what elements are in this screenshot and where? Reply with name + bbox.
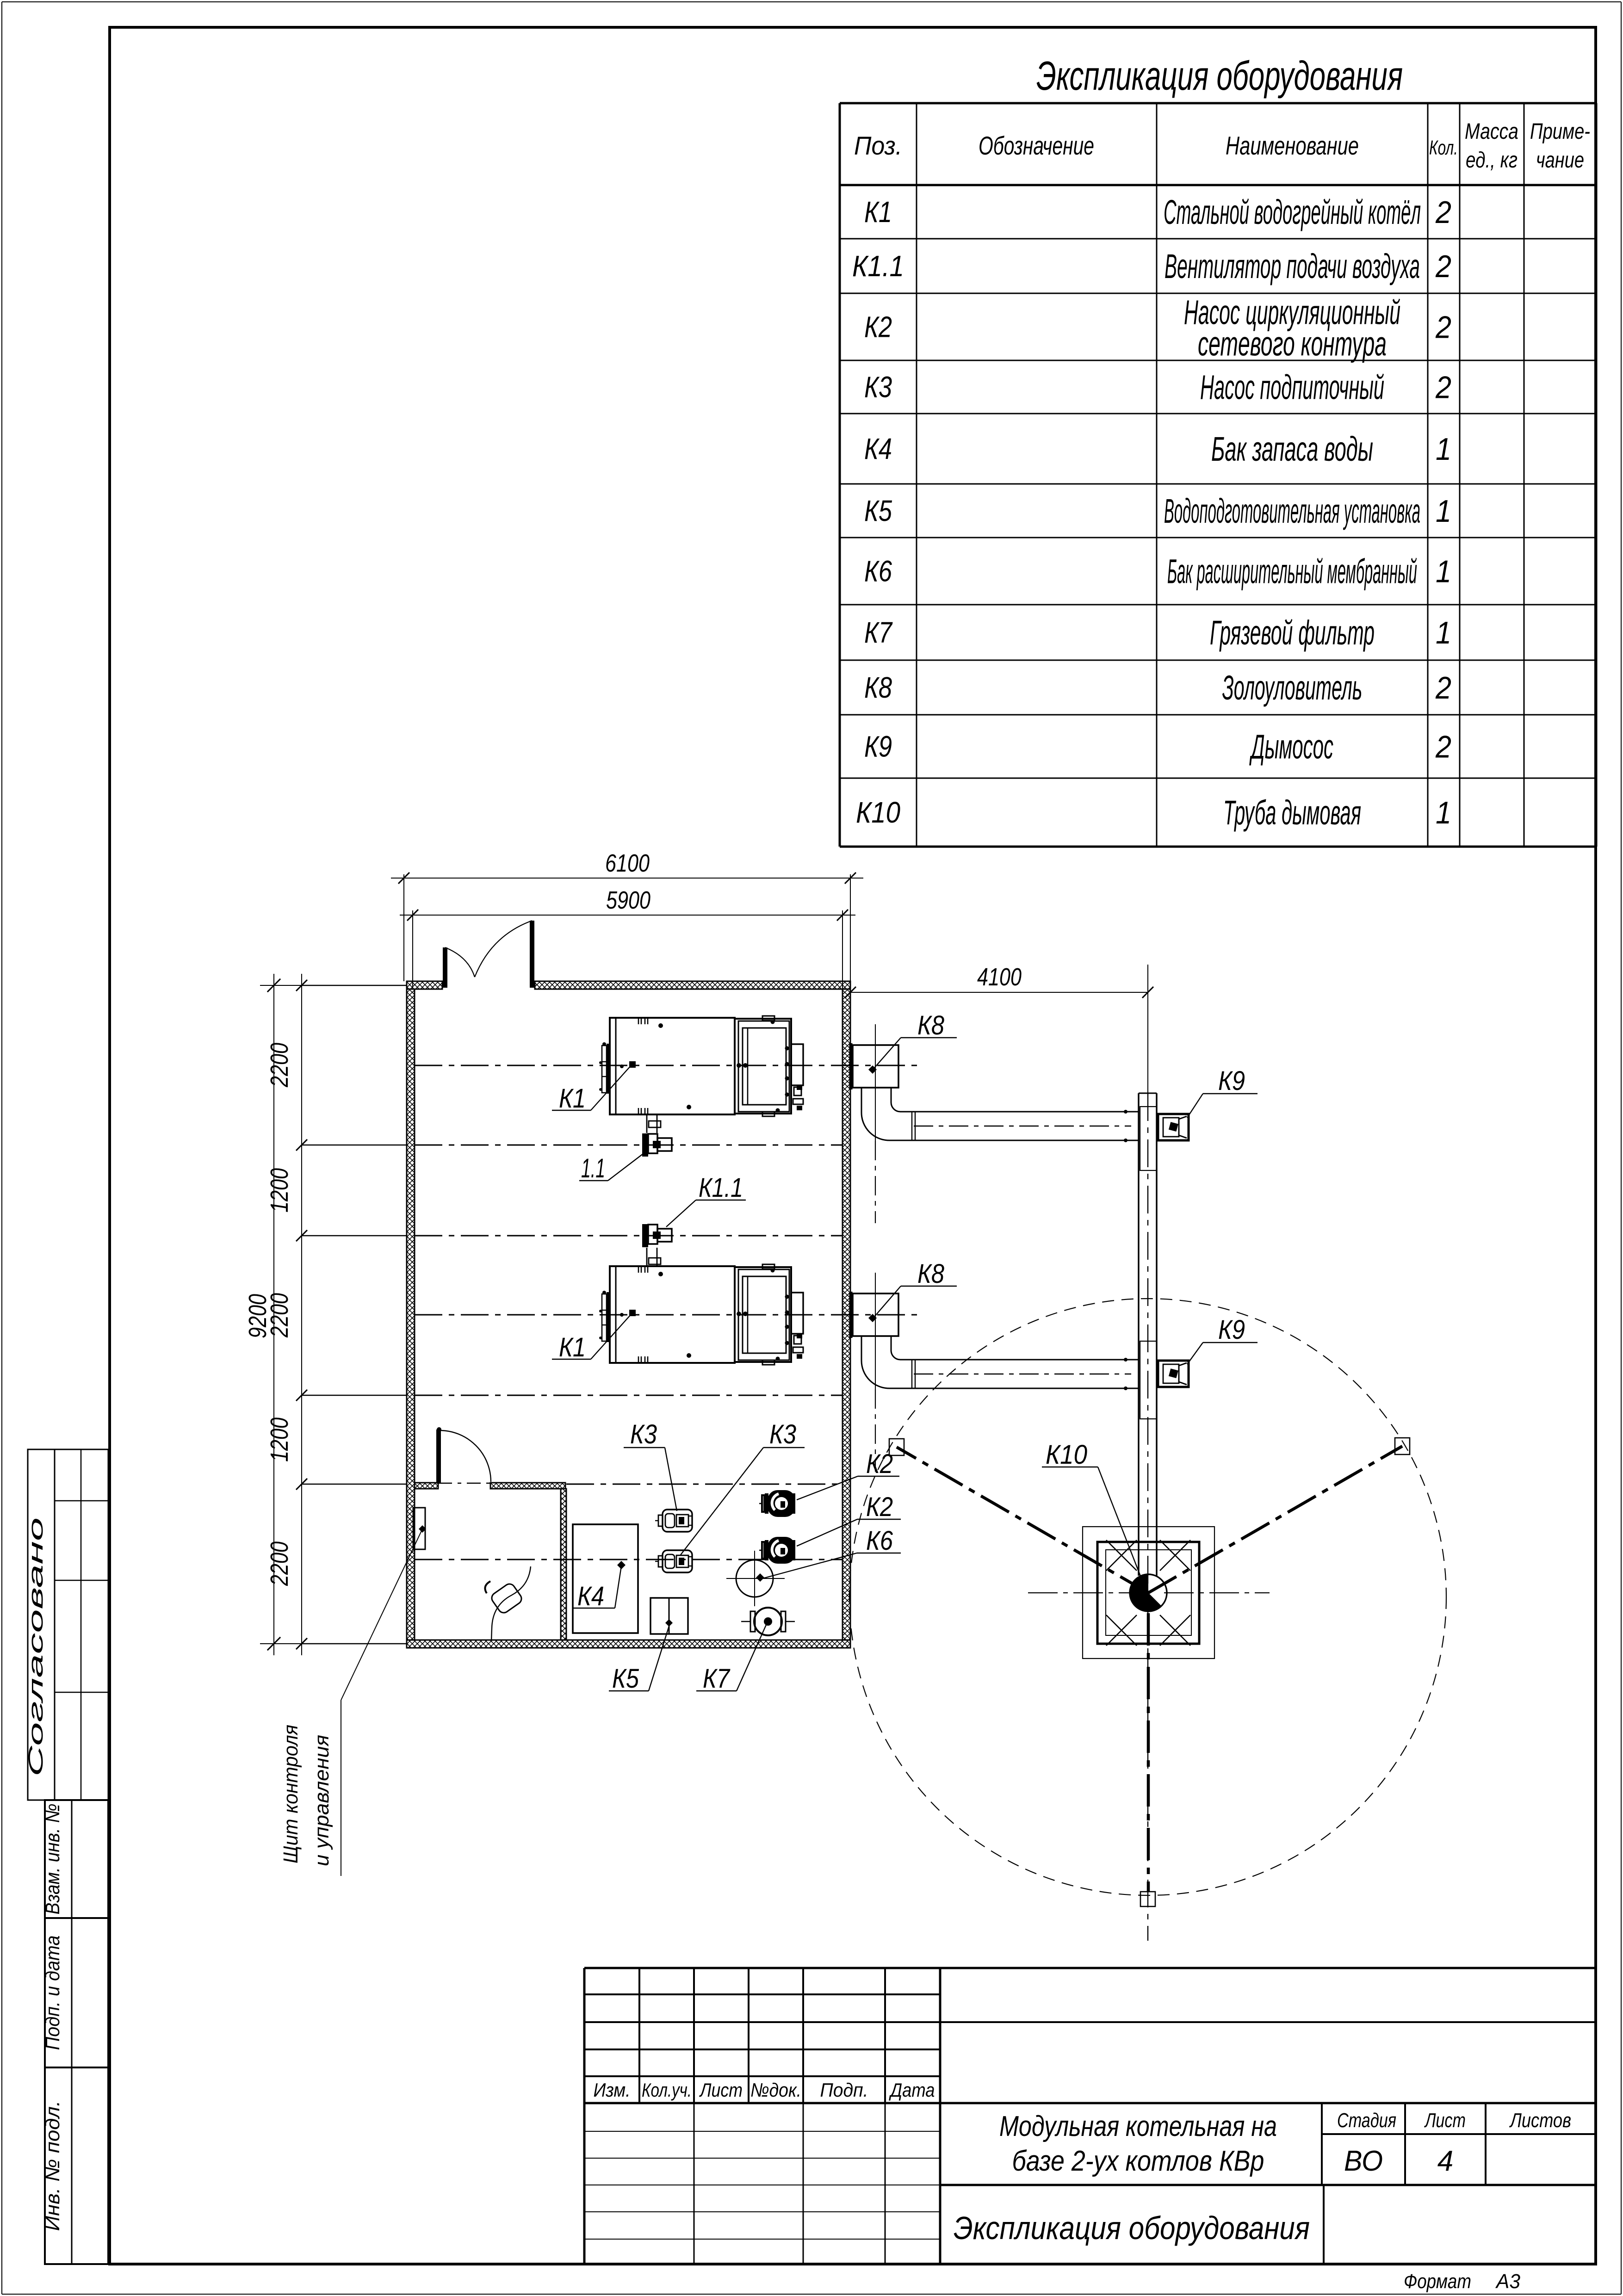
svg-text:Стадия: Стадия xyxy=(1337,2109,1396,2132)
svg-text:1: 1 xyxy=(1436,795,1451,830)
svg-text:Масса: Масса xyxy=(1465,119,1518,144)
svg-text:Вентилятор подачи воздуха: Вентилятор подачи воздуха xyxy=(1165,247,1420,285)
svg-text:К3: К3 xyxy=(769,1419,796,1449)
svg-text:К3: К3 xyxy=(630,1419,657,1449)
svg-text:К10: К10 xyxy=(1046,1440,1087,1470)
svg-text:Подп.: Подп. xyxy=(820,2079,868,2101)
svg-text:Модульная котельная на: Модульная котельная на xyxy=(999,2110,1277,2142)
svg-text:Приме-: Приме- xyxy=(1530,119,1590,144)
svg-text:Формат: Формат xyxy=(1404,2270,1471,2293)
svg-text:Листов: Листов xyxy=(1509,2109,1571,2132)
svg-text:2200: 2200 xyxy=(266,1541,293,1586)
svg-text:2200: 2200 xyxy=(266,1293,293,1338)
svg-text:Труба дымовая: Труба дымовая xyxy=(1223,793,1361,832)
svg-text:Обозначение: Обозначение xyxy=(979,131,1094,160)
svg-text:Кол.: Кол. xyxy=(1429,136,1458,159)
svg-text:К9: К9 xyxy=(1218,1066,1245,1096)
svg-text:Насос подпиточный: Насос подпиточный xyxy=(1200,368,1384,407)
svg-text:Взам. инв. №: Взам. инв. № xyxy=(42,1804,64,1915)
svg-text:А3: А3 xyxy=(1495,2270,1520,2293)
svg-text:Наименование: Наименование xyxy=(1226,131,1359,160)
svg-text:Дата: Дата xyxy=(889,2079,935,2101)
svg-text:Грязевой фильтр: Грязевой фильтр xyxy=(1210,613,1375,652)
svg-text:2: 2 xyxy=(1435,310,1451,345)
svg-text:базе 2-ух котлов КВр: базе 2-ух котлов КВр xyxy=(1012,2145,1264,2177)
svg-text:6100: 6100 xyxy=(605,849,650,877)
svg-text:2: 2 xyxy=(1435,370,1451,405)
svg-text:сетевого контура: сетевого контура xyxy=(1198,325,1387,363)
svg-text:К2: К2 xyxy=(866,1492,893,1522)
svg-text:2200: 2200 xyxy=(266,1043,293,1088)
svg-text:К5: К5 xyxy=(864,494,892,527)
svg-text:2: 2 xyxy=(1435,730,1451,765)
svg-text:К6: К6 xyxy=(864,555,892,588)
svg-text:К4: К4 xyxy=(864,432,892,465)
svg-text:К10: К10 xyxy=(856,796,900,829)
svg-text:2: 2 xyxy=(1435,670,1451,706)
svg-text:К6: К6 xyxy=(866,1526,893,1556)
svg-text:К9: К9 xyxy=(864,730,892,763)
svg-text:Изм.: Изм. xyxy=(594,2079,631,2101)
svg-text:1: 1 xyxy=(1436,494,1451,529)
svg-text:Водоподготовительная установка: Водоподготовительная установка xyxy=(1164,492,1420,530)
svg-text:1: 1 xyxy=(1436,554,1451,589)
svg-text:2: 2 xyxy=(1435,249,1451,284)
svg-text:Дымосос: Дымосос xyxy=(1249,728,1333,766)
svg-text:1: 1 xyxy=(1436,432,1451,467)
svg-text:К8: К8 xyxy=(917,1010,944,1040)
svg-text:Инв. № подл.: Инв. № подл. xyxy=(42,2101,64,2231)
svg-text:К8: К8 xyxy=(917,1259,944,1289)
svg-text:К1: К1 xyxy=(559,1332,586,1362)
svg-text:Экспликация оборудования: Экспликация оборудования xyxy=(954,2210,1310,2246)
svg-text:5900: 5900 xyxy=(606,886,650,914)
svg-text:1200: 1200 xyxy=(266,1417,293,1462)
svg-text:Экспликация оборудования: Экспликация оборудования xyxy=(1036,53,1403,99)
svg-text:Лист: Лист xyxy=(699,2079,743,2101)
svg-text:2: 2 xyxy=(1435,195,1451,230)
svg-text:Стальной водогрейный котёл: Стальной водогрейный котёл xyxy=(1164,193,1421,231)
svg-text:1: 1 xyxy=(1436,615,1451,650)
svg-text:4: 4 xyxy=(1437,2145,1453,2177)
svg-text:Бак запаса воды: Бак запаса воды xyxy=(1211,430,1373,468)
svg-text:К1: К1 xyxy=(559,1083,586,1114)
svg-text:и управления: и управления xyxy=(310,1735,333,1866)
svg-text:К9: К9 xyxy=(1218,1315,1245,1345)
svg-text:Согласовано: Согласовано xyxy=(25,1517,47,1776)
svg-text:ед., кг: ед., кг xyxy=(1466,148,1518,173)
svg-text:К3: К3 xyxy=(864,371,892,404)
svg-text:Щит контроля: Щит контроля xyxy=(279,1725,302,1863)
svg-text:К8: К8 xyxy=(864,671,892,704)
svg-text:К1.1: К1.1 xyxy=(699,1173,743,1203)
svg-text:Лист: Лист xyxy=(1424,2109,1466,2132)
svg-text:Подп. и дата: Подп. и дата xyxy=(42,1936,64,2050)
svg-text:К4: К4 xyxy=(577,1581,604,1611)
svg-text:1.1: 1.1 xyxy=(581,1153,605,1183)
svg-text:№док.: №док. xyxy=(750,2079,801,2101)
svg-text:Поз.: Поз. xyxy=(854,131,902,160)
svg-text:К1: К1 xyxy=(864,195,892,229)
svg-text:чание: чание xyxy=(1536,148,1584,173)
svg-text:Бак расширительный мембранный: Бак расширительный мембранный xyxy=(1167,552,1417,591)
svg-text:ВО: ВО xyxy=(1344,2145,1383,2177)
svg-text:Кол.уч.: Кол.уч. xyxy=(642,2079,692,2101)
svg-text:4100: 4100 xyxy=(977,963,1022,991)
svg-text:Золоуловитель: Золоуловитель xyxy=(1222,668,1363,707)
svg-text:К7: К7 xyxy=(864,616,893,649)
svg-text:К1.1: К1.1 xyxy=(852,249,904,283)
svg-text:К2: К2 xyxy=(864,310,892,344)
svg-text:К5: К5 xyxy=(612,1664,639,1694)
svg-text:1200: 1200 xyxy=(266,1168,293,1213)
svg-text:К7: К7 xyxy=(703,1664,731,1694)
